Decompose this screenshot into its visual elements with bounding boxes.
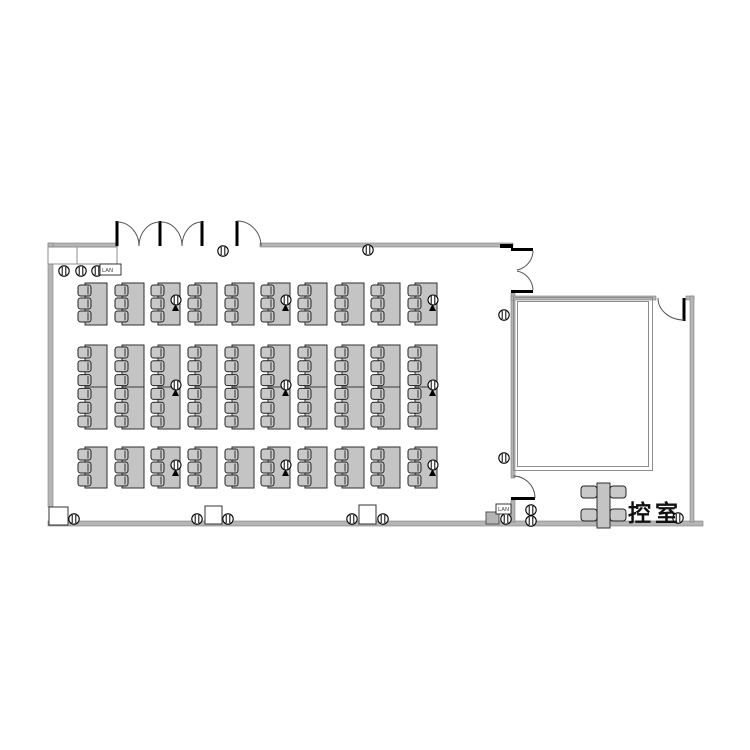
chair	[115, 311, 128, 322]
pillar	[49, 507, 68, 525]
outlet-icon	[192, 514, 202, 524]
wall-right-outer	[690, 296, 694, 522]
meeting-chair	[581, 486, 597, 498]
chair	[115, 449, 128, 460]
chair	[78, 462, 91, 473]
chair	[225, 462, 238, 473]
inner-room	[514, 298, 653, 471]
outlet-icon	[526, 516, 536, 526]
door-swing-arc	[658, 298, 684, 320]
chair	[151, 388, 164, 399]
chair	[298, 462, 311, 473]
chair	[78, 449, 91, 460]
chair	[298, 361, 311, 372]
chair	[78, 347, 91, 358]
chair	[115, 298, 128, 309]
annex-top-door	[658, 298, 686, 321]
outlet-icon	[347, 514, 357, 524]
inner-room-outer-line	[514, 298, 653, 471]
chair	[371, 375, 384, 386]
chair	[371, 402, 384, 413]
chair	[298, 375, 311, 386]
chair	[408, 347, 421, 358]
chair	[408, 416, 421, 427]
chair	[298, 475, 311, 486]
wall-top-main	[260, 243, 513, 247]
floor-plan-drawing: LANLAN 控室	[0, 0, 750, 750]
chair	[261, 285, 274, 296]
meeting-table	[597, 483, 610, 528]
chair	[335, 311, 348, 322]
chair	[225, 285, 238, 296]
microphone-icon	[428, 380, 438, 390]
chair	[408, 285, 421, 296]
floor-plan: LANLAN 控室	[0, 0, 750, 750]
chair	[371, 285, 384, 296]
chair	[225, 375, 238, 386]
chair	[408, 375, 421, 386]
door-swing-arc	[161, 222, 182, 246]
door-jamb	[201, 221, 204, 246]
chair	[261, 361, 274, 372]
microphone-icon	[281, 460, 291, 470]
chair	[188, 361, 201, 372]
lan-floor-box-label: LAN	[102, 268, 113, 274]
chair	[115, 285, 128, 296]
chair	[261, 402, 274, 413]
chair	[371, 361, 384, 372]
chair	[151, 449, 164, 460]
chair	[225, 298, 238, 309]
chair	[298, 298, 311, 309]
chair	[335, 462, 348, 473]
chair	[115, 388, 128, 399]
microphone-icon	[428, 460, 438, 470]
chair	[408, 298, 421, 309]
chair	[371, 449, 384, 460]
chair	[298, 285, 311, 296]
microphone-icon	[171, 460, 181, 470]
door-swing-arc	[513, 476, 535, 498]
entrance-single-door	[236, 221, 262, 246]
chair	[151, 347, 164, 358]
chair	[298, 449, 311, 460]
chair	[261, 347, 274, 358]
chair	[335, 347, 348, 358]
chair	[115, 402, 128, 413]
door-jamb	[116, 221, 119, 246]
chair	[78, 388, 91, 399]
chair	[151, 361, 164, 372]
wall-step	[500, 244, 513, 248]
lan-floor-box-label: LAN	[498, 507, 509, 513]
chair	[225, 361, 238, 372]
chair	[188, 311, 201, 322]
chair	[115, 416, 128, 427]
door-jamb	[159, 221, 162, 246]
chair	[188, 388, 201, 399]
chair	[115, 347, 128, 358]
waiting-room-table-group	[581, 483, 626, 528]
chair	[261, 311, 274, 322]
chair	[188, 449, 201, 460]
microphone-icon	[428, 295, 438, 305]
chair	[335, 361, 348, 372]
pillar	[205, 506, 222, 524]
door-leaf	[683, 298, 686, 321]
chair	[151, 311, 164, 322]
door-leaf	[511, 290, 533, 293]
chair	[261, 475, 274, 486]
chair	[188, 347, 201, 358]
chair	[261, 416, 274, 427]
chair	[371, 475, 384, 486]
chair	[78, 375, 91, 386]
door-swing-arc	[117, 222, 139, 246]
chair	[335, 388, 348, 399]
chair	[188, 462, 201, 473]
door-swing-arc	[182, 222, 202, 246]
door-leaf	[511, 497, 535, 500]
microphone-icon	[171, 380, 181, 390]
seating-area	[78, 283, 438, 488]
meeting-chair	[581, 509, 597, 521]
chair	[335, 285, 348, 296]
chair	[408, 402, 421, 413]
chair	[115, 375, 128, 386]
chair	[188, 298, 201, 309]
chair	[335, 449, 348, 460]
chair	[261, 375, 274, 386]
chair	[188, 375, 201, 386]
chair	[78, 298, 91, 309]
chair	[151, 285, 164, 296]
chair	[408, 449, 421, 460]
outlet-icon	[501, 514, 511, 524]
chair	[225, 475, 238, 486]
chair	[225, 388, 238, 399]
chair	[78, 475, 91, 486]
chair	[225, 402, 238, 413]
door-swing-arc	[517, 271, 533, 290]
outlet-icon	[526, 505, 536, 515]
outlet-icon	[223, 514, 233, 524]
chair	[298, 388, 311, 399]
chair	[151, 375, 164, 386]
wall-left	[48, 243, 53, 507]
chair	[225, 449, 238, 460]
chair	[188, 475, 201, 486]
waiting-room-label: 控室	[628, 500, 682, 527]
chair	[78, 402, 91, 413]
chair	[115, 361, 128, 372]
outlet-icon	[218, 246, 228, 256]
side-double-door	[511, 248, 533, 293]
counter-outline	[48, 247, 117, 264]
chair	[151, 475, 164, 486]
chair	[298, 402, 311, 413]
chair	[371, 347, 384, 358]
chair	[371, 462, 384, 473]
door-swing-arc	[139, 222, 160, 246]
pillar	[359, 505, 376, 524]
outlet-icon	[76, 266, 86, 276]
microphone-icon	[281, 380, 291, 390]
chair	[151, 298, 164, 309]
chair	[261, 388, 274, 399]
chair	[261, 449, 274, 460]
outlet-icon	[499, 453, 509, 463]
inner-room-inner-line	[518, 302, 649, 467]
reception-counter	[48, 232, 117, 264]
outlet-icon	[59, 266, 69, 276]
microphone-icon	[281, 295, 291, 305]
chair	[408, 388, 421, 399]
chair	[408, 475, 421, 486]
door-swing-arc	[517, 251, 533, 270]
chair	[261, 298, 274, 309]
chair	[335, 375, 348, 386]
chair	[371, 311, 384, 322]
door-leaf	[236, 221, 239, 246]
chair	[151, 416, 164, 427]
entrance-double-door-2	[161, 221, 204, 246]
outlet-icon	[378, 514, 388, 524]
door-swing-arc	[237, 221, 261, 246]
chair	[408, 361, 421, 372]
wall-top-left	[48, 243, 117, 247]
chair	[115, 475, 128, 486]
chair	[298, 416, 311, 427]
chair	[335, 475, 348, 486]
chair	[225, 416, 238, 427]
chair	[298, 311, 311, 322]
chair	[151, 402, 164, 413]
chair	[408, 462, 421, 473]
meeting-chair	[610, 486, 626, 498]
chair	[371, 298, 384, 309]
microphone-icon	[171, 295, 181, 305]
chair	[78, 416, 91, 427]
chair	[408, 311, 421, 322]
waiting-room-door	[511, 476, 535, 500]
chair	[371, 416, 384, 427]
chair	[225, 311, 238, 322]
chair	[335, 298, 348, 309]
outlet-icon	[363, 245, 373, 255]
outlet-icon	[499, 310, 509, 320]
chair	[78, 285, 91, 296]
chair	[335, 402, 348, 413]
chair	[78, 361, 91, 372]
meeting-chair	[610, 509, 626, 521]
chair	[298, 347, 311, 358]
chair	[115, 462, 128, 473]
chair	[371, 388, 384, 399]
chair	[188, 285, 201, 296]
chair	[78, 311, 91, 322]
chair	[225, 347, 238, 358]
chair	[261, 462, 274, 473]
chair	[188, 416, 201, 427]
door-leaf	[511, 248, 533, 251]
chair	[188, 402, 201, 413]
entrance-double-door-1	[116, 221, 162, 246]
chair	[151, 462, 164, 473]
chair	[335, 416, 348, 427]
outlet-icon	[69, 514, 79, 524]
